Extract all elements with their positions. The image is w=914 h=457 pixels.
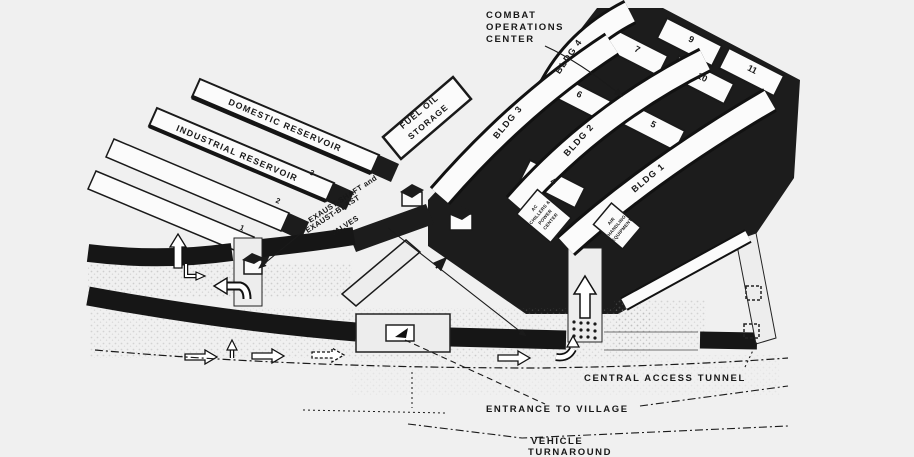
norad-complex-cutaway-diagram: DOMESTIC RESERVOIR INDUSTRIAL RESERVOIR … [0, 0, 914, 457]
right-access-road [736, 233, 776, 344]
lower-tunnel-wall [450, 337, 566, 340]
reservoir-number-1: 1 [238, 223, 245, 233]
upper-tunnel-wall [88, 252, 232, 257]
lower-tunnel-wall [700, 340, 757, 341]
approach-shadow [348, 204, 434, 252]
diagram-canvas: DOMESTIC RESERVOIR INDUSTRIAL RESERVOIR … [0, 0, 914, 457]
turnaround-dash-line [408, 424, 788, 438]
combat-ops-label-line1: COMBAT [486, 10, 537, 21]
vehicle-turnaround-label-line1: VEHICLE [531, 436, 583, 447]
complex-entrance-column [568, 248, 602, 342]
combat-ops-label-line3: CENTER [486, 34, 535, 45]
portal-structure-box [356, 314, 450, 352]
combat-ops-label-line2: OPERATIONS [486, 22, 564, 33]
entrance-to-village-label: ENTRANCE TO VILLAGE [486, 404, 629, 415]
village-road-dotted [303, 410, 445, 413]
vehicle-turnaround-label-line2: TURNAROUND [528, 447, 612, 457]
access-ramp [342, 240, 420, 306]
right-roadway [736, 233, 776, 344]
portal-inner-box [386, 325, 414, 341]
reservoir-number-2: 2 [274, 196, 281, 206]
road-texture [88, 263, 352, 297]
upper-tunnel-wall [262, 236, 354, 248]
central-access-tunnel-label: CENTRAL ACCESS TUNNEL [584, 373, 746, 384]
fuel-oil-storage: FUEL OIL STORAGE [383, 77, 471, 159]
